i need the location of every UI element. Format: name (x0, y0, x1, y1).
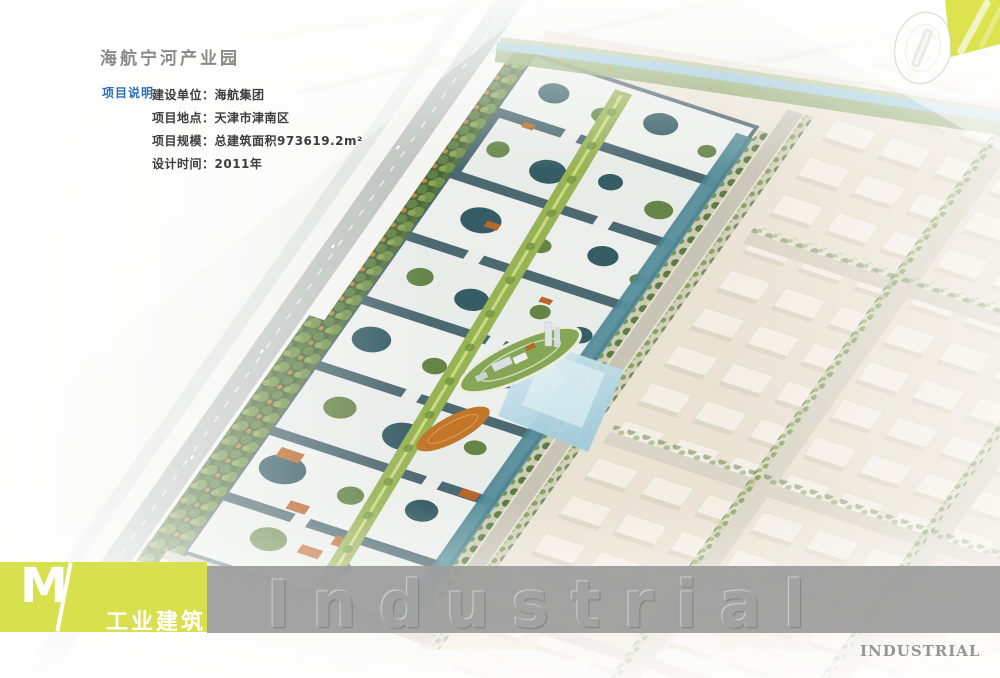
category-label: 工业建筑 (106, 604, 206, 636)
info-line-scale: 项目规模：总建筑面积973619.2m² (152, 130, 363, 153)
industrial-corner-text: INDUSTRIAL (860, 642, 980, 660)
watermark-band: Industrial (207, 566, 1000, 633)
category-band: M 工业建筑 (0, 562, 207, 632)
page-title: 海航宁河产业园 (100, 44, 240, 69)
project-info-list: 建设单位：海航集团 项目地点：天津市津南区 项目规模：总建筑面积973619.2… (152, 84, 363, 176)
project-info-label: 项目说明 (102, 84, 154, 101)
info-line-builder: 建设单位：海航集团 (152, 84, 363, 107)
watermark-text: Industrial (267, 566, 827, 633)
info-line-location: 项目地点：天津市津南区 (152, 107, 363, 130)
info-line-year: 设计时间：2011年 (152, 153, 363, 176)
presentation-page: 海航宁河产业园 项目说明 建设单位：海航集团 项目地点：天津市津南区 项目规模：… (0, 0, 1000, 678)
